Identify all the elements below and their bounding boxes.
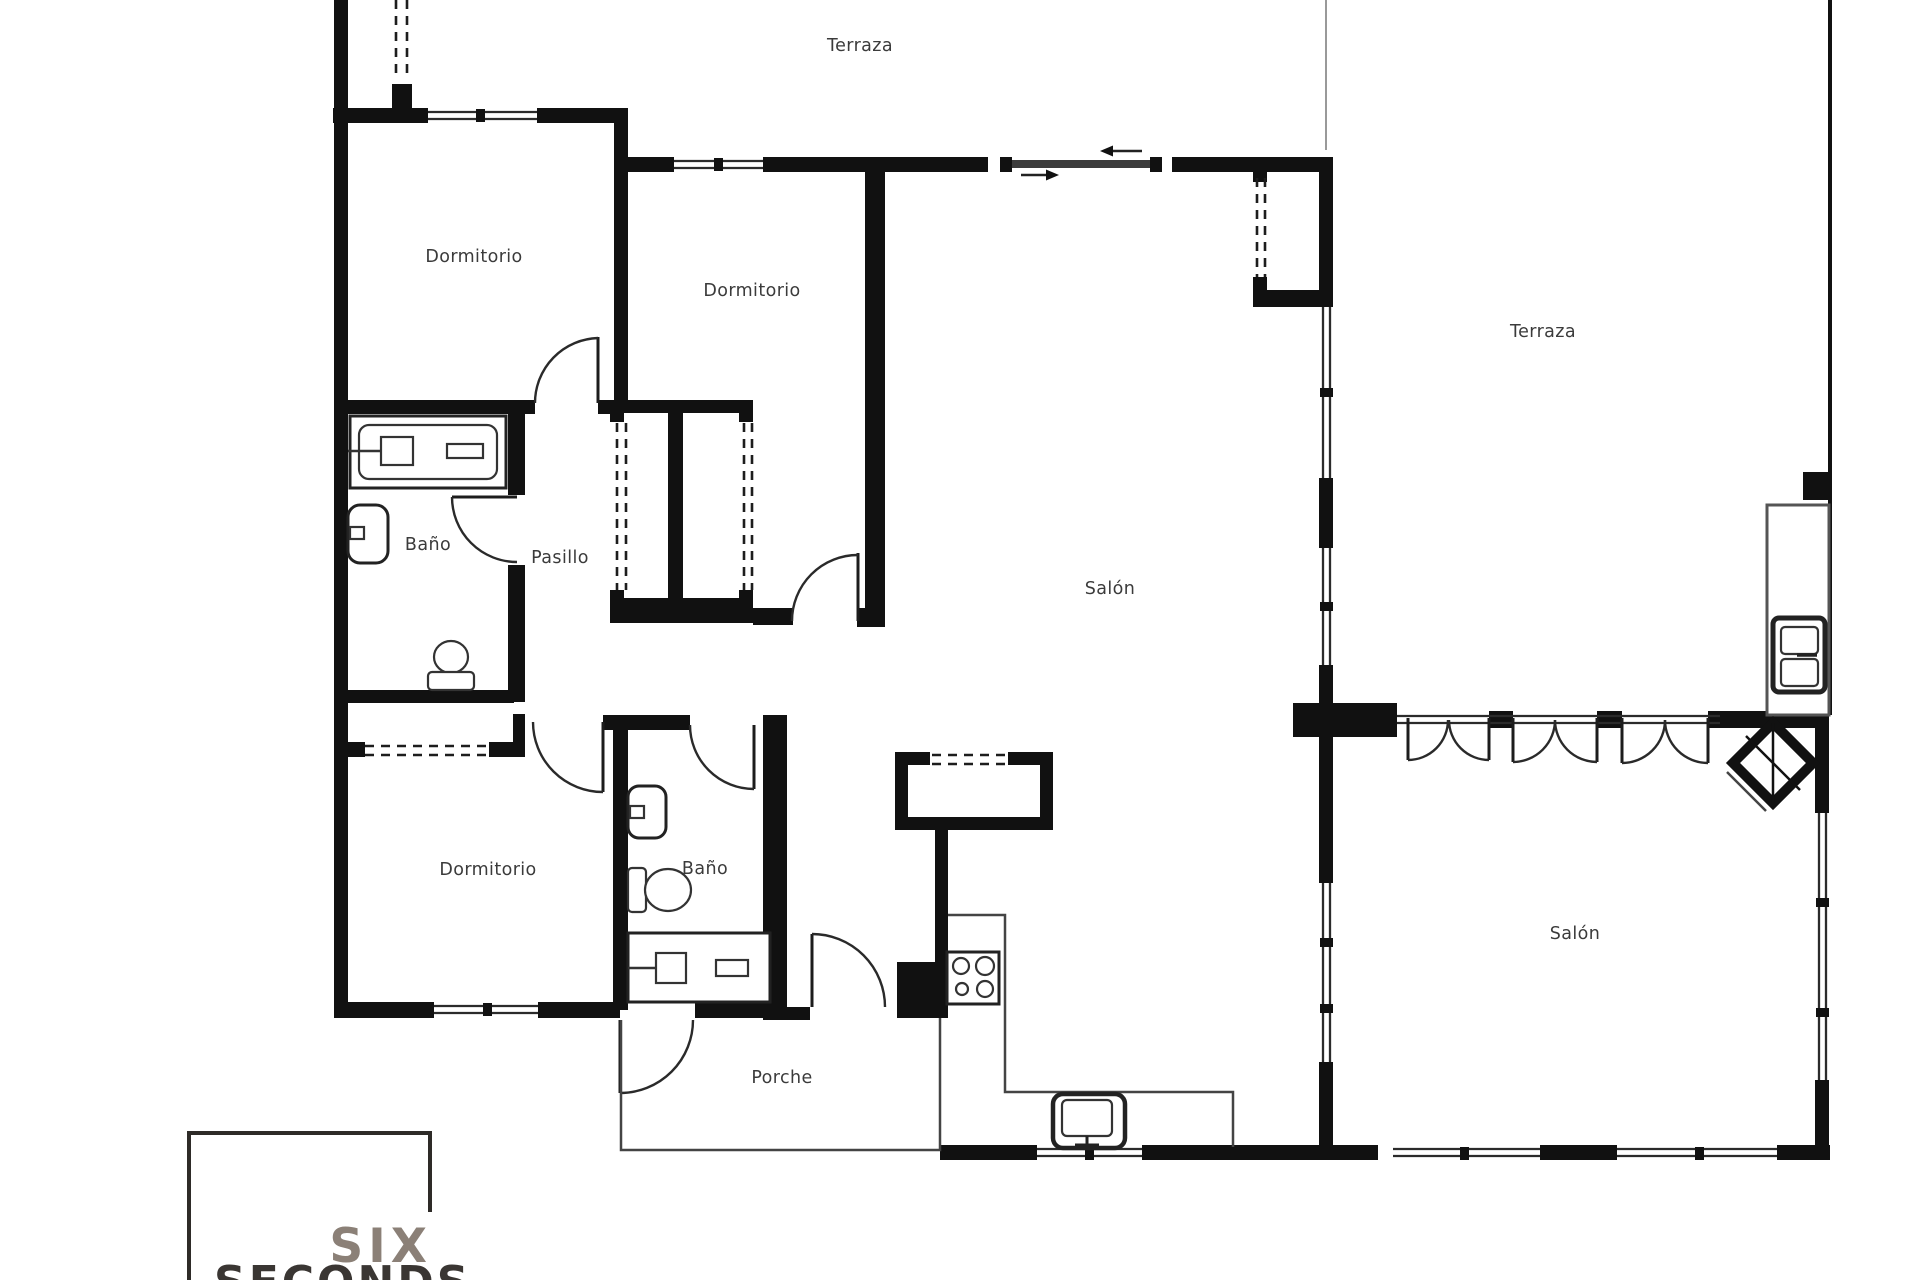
wall xyxy=(1319,665,1333,883)
wall-bano1-bottom xyxy=(334,690,514,703)
wall xyxy=(1777,1145,1830,1160)
room-label-dormitorio-3: Dormitorio xyxy=(439,860,536,880)
wardrobe-stub xyxy=(739,590,753,623)
room-label-terraza-right: Terraza xyxy=(1509,322,1576,342)
wall xyxy=(334,400,508,414)
room-areas xyxy=(348,0,1828,1150)
wall-kitchen xyxy=(935,830,948,965)
wardrobe-bottom xyxy=(610,598,753,623)
wall xyxy=(508,400,535,414)
outdoor-counter xyxy=(1767,505,1829,715)
wall-bano1-right xyxy=(508,565,525,702)
wall-bano1-right xyxy=(508,414,525,495)
wall xyxy=(940,1145,1037,1160)
wardrobe-top xyxy=(610,400,753,413)
niche-stub xyxy=(1253,277,1267,292)
wall xyxy=(333,108,428,123)
wall-dorm2-right xyxy=(865,157,885,627)
wall xyxy=(763,1007,810,1020)
wall xyxy=(1142,1145,1378,1160)
room-label-pasillo: Pasillo xyxy=(531,548,589,568)
room-label-bano-2: Baño xyxy=(682,859,728,879)
room-label-salon-right: Salón xyxy=(1550,924,1601,944)
wall-stub xyxy=(392,84,412,110)
vanity-counter-bano2 xyxy=(628,933,770,1002)
wall xyxy=(1489,711,1513,728)
wall xyxy=(603,715,628,730)
wall xyxy=(614,108,628,403)
room-label-terraza-top: Terraza xyxy=(826,36,893,56)
room-label-bano-1: Baño xyxy=(405,535,451,555)
wall xyxy=(1540,1145,1617,1160)
wall xyxy=(695,1002,768,1018)
wall xyxy=(1000,157,1012,172)
wall xyxy=(1150,157,1162,172)
fireplace xyxy=(895,752,1053,830)
wall-stub xyxy=(513,714,525,757)
closet-end xyxy=(489,742,514,757)
room-label-salon-main: Salón xyxy=(1085,579,1136,599)
sink-icon-bano1 xyxy=(348,505,388,563)
sink-icon-bano2 xyxy=(628,786,666,838)
wardrobe-stub xyxy=(739,400,753,422)
wall-dorm3-right xyxy=(613,730,628,1010)
wall xyxy=(334,1002,434,1018)
cooktop-icon xyxy=(947,952,999,1004)
wall xyxy=(1597,711,1622,728)
room-dormitorio-2 xyxy=(628,172,865,598)
wardrobe-divider xyxy=(668,413,683,598)
wall xyxy=(1319,157,1333,307)
floor-plan-page: Terraza Dormitorio Dormitorio Terraza Ba… xyxy=(0,0,1920,1280)
wall xyxy=(753,608,793,625)
wall-bano2-top xyxy=(628,715,690,730)
wall xyxy=(1172,157,1333,172)
wall xyxy=(598,400,616,414)
floor-plan-drawing: Terraza Dormitorio Dormitorio Terraza Ba… xyxy=(0,0,1920,1280)
closet-end xyxy=(348,742,365,757)
bathtub-icon xyxy=(348,416,506,488)
wall xyxy=(538,1002,620,1018)
room-label-dormitorio-1: Dormitorio xyxy=(425,247,522,267)
wardrobe-stub xyxy=(610,590,624,623)
wall-kitchen-block xyxy=(897,962,948,1018)
wall xyxy=(1319,478,1333,548)
sliding-glass-door xyxy=(1012,160,1150,168)
room-terraza-right xyxy=(1333,0,1828,713)
room-label-dormitorio-2: Dormitorio xyxy=(703,281,800,301)
wall-junction-block xyxy=(1293,703,1397,737)
wall xyxy=(628,157,674,172)
wall-pillar xyxy=(1803,472,1830,500)
room-label-porche: Porche xyxy=(751,1068,812,1088)
kitchen-sink-icon xyxy=(1053,1094,1125,1148)
wall-left-outer xyxy=(334,0,348,1016)
logo-text-seconds: SECONDS xyxy=(214,1257,471,1280)
